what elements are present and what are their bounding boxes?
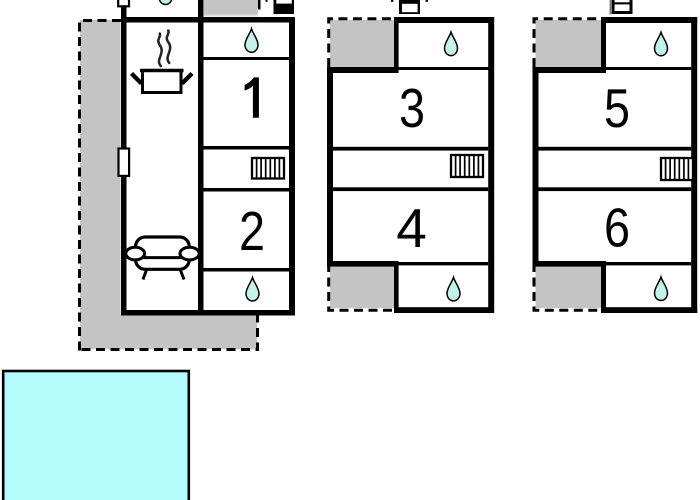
- svg-text:2: 2: [239, 200, 265, 262]
- svg-text:5: 5: [604, 77, 630, 139]
- svg-text:6: 6: [604, 197, 630, 259]
- svg-text:4: 4: [396, 197, 427, 259]
- svg-text:3: 3: [399, 77, 425, 139]
